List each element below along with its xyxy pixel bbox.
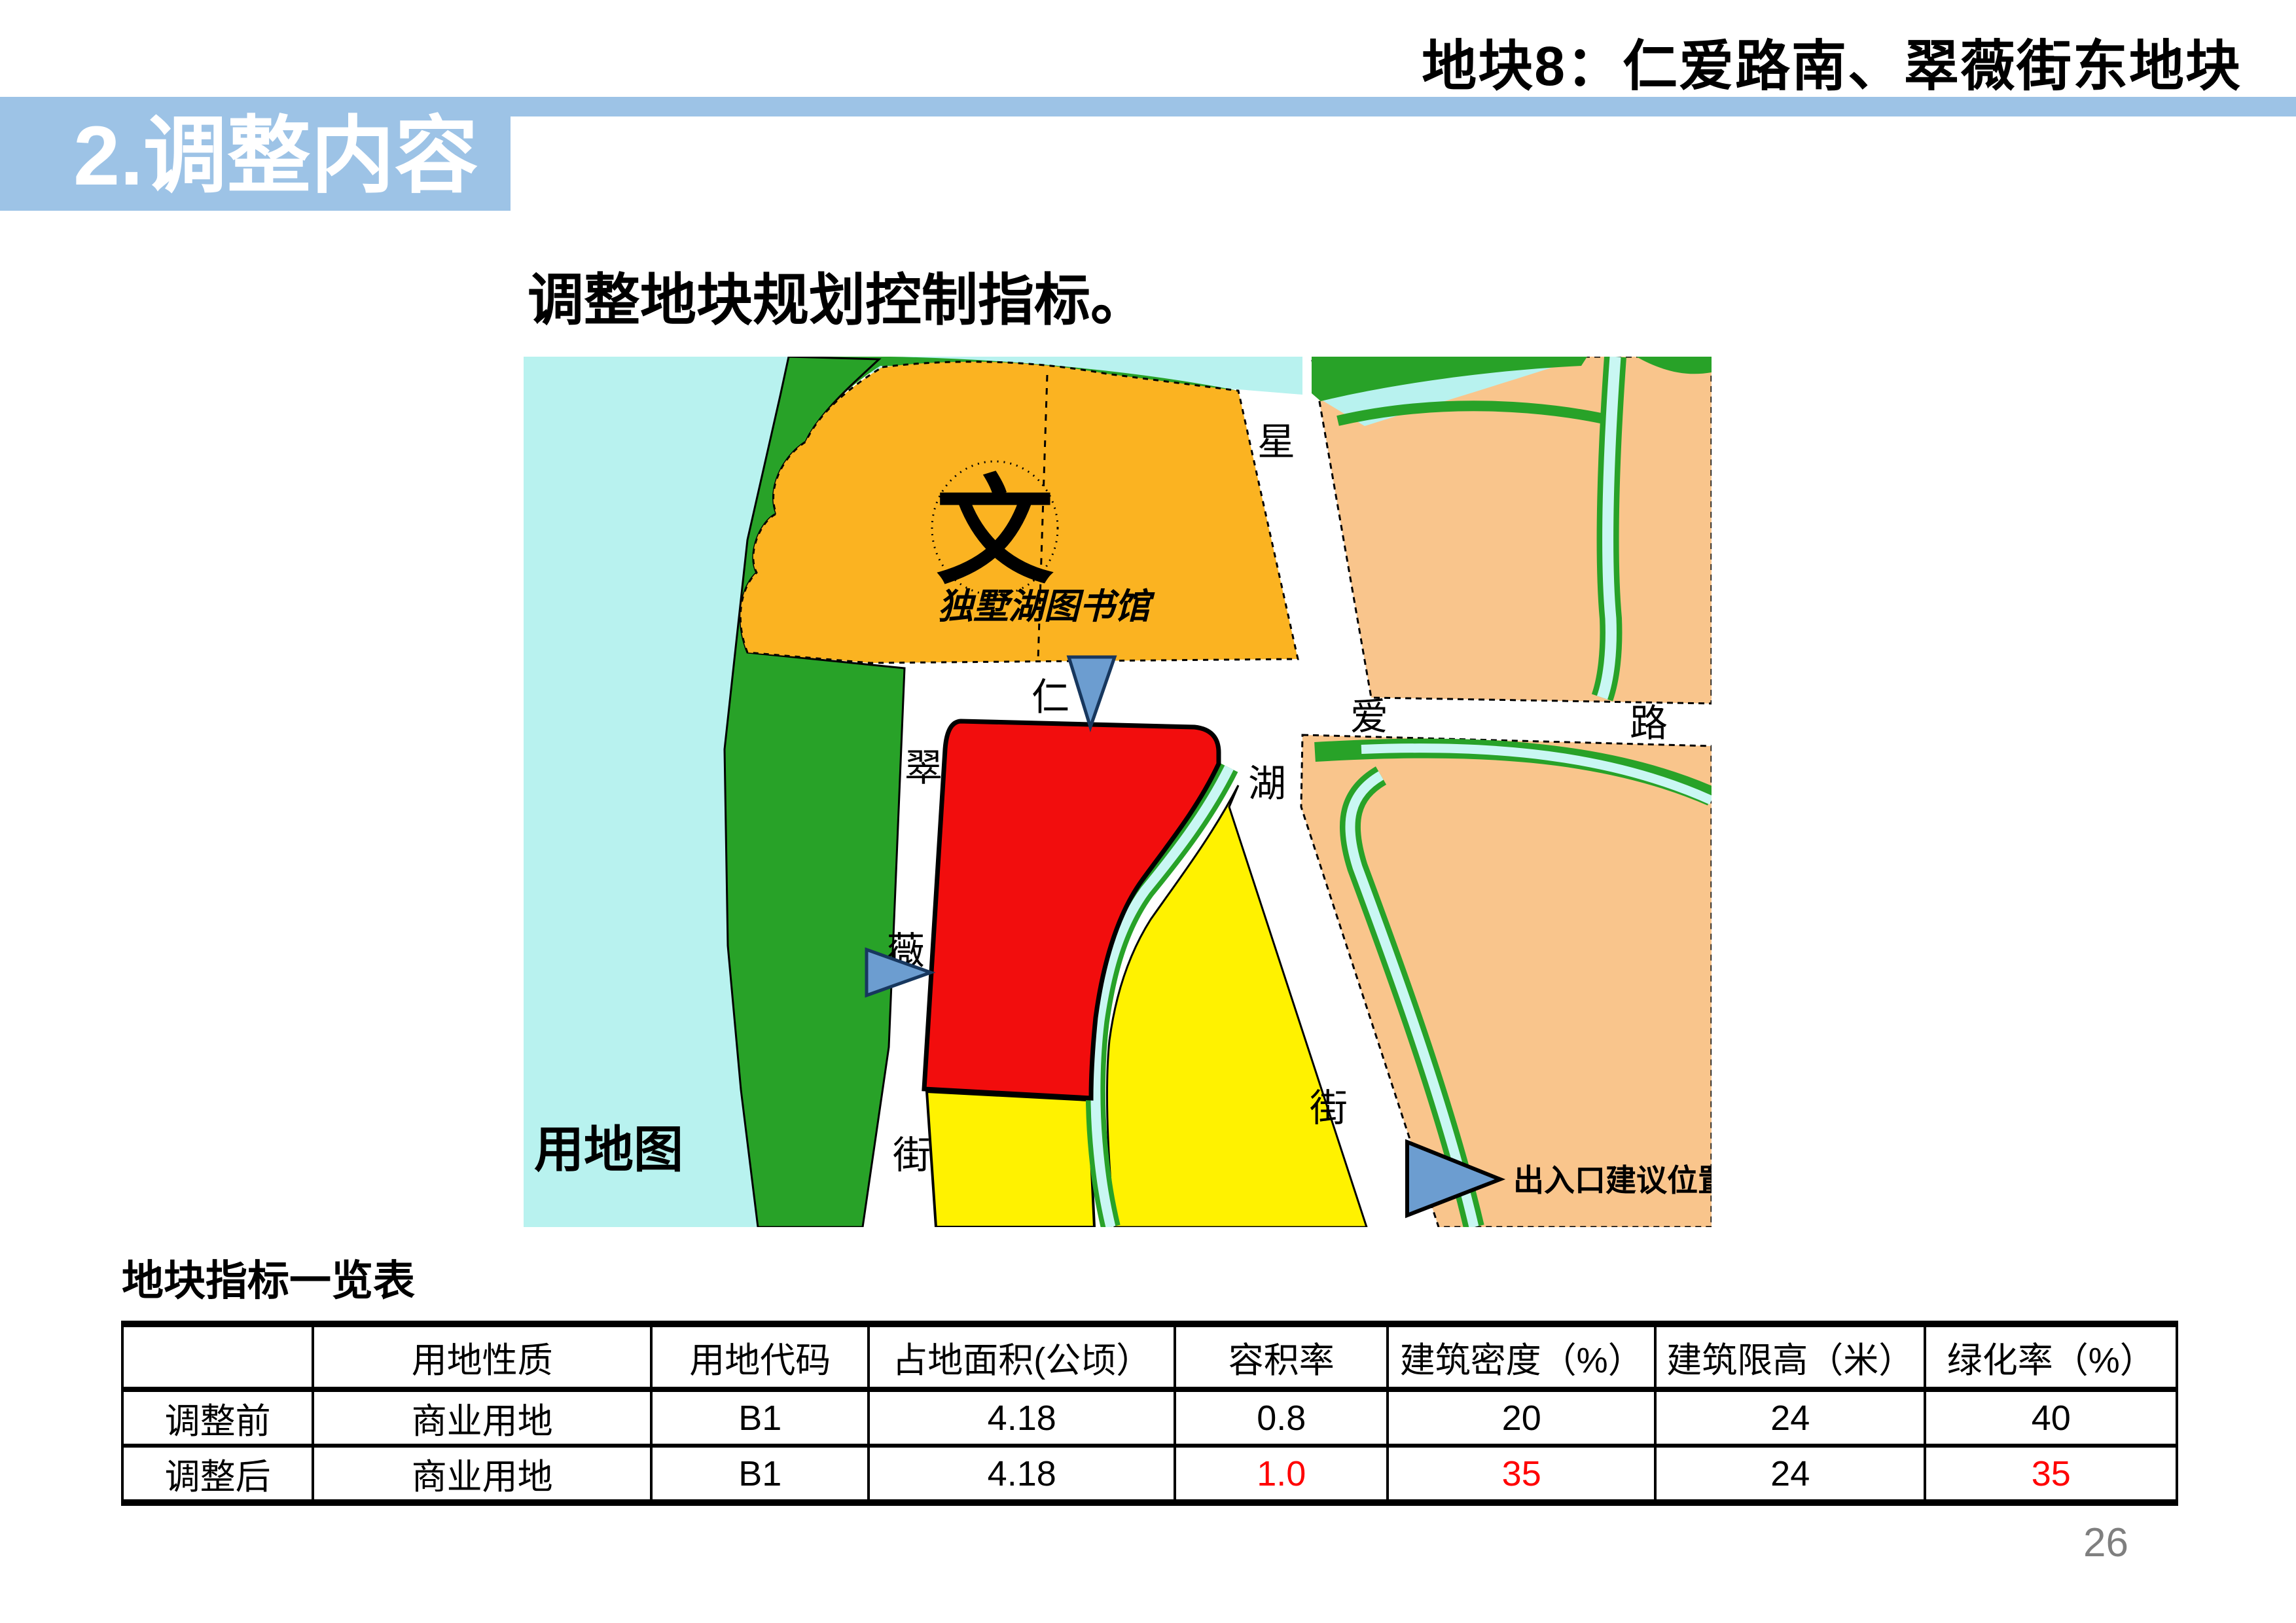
- col-header-greening: 绿化率（%）: [1925, 1324, 2177, 1389]
- table-title: 地块指标一览表: [122, 1247, 415, 1308]
- map-caption: 用地图: [534, 1122, 683, 1178]
- section-banner: 2.调整内容: [0, 97, 511, 211]
- col-header-area: 占地面积(公顷）: [869, 1324, 1175, 1389]
- cell-value: B1: [651, 1389, 869, 1446]
- road-label-cui: 翠: [905, 747, 942, 789]
- cell-value-changed: 35: [1388, 1446, 1655, 1503]
- table-row-before: 调整前 商业用地 B1 4.18 0.8 20 24 40: [122, 1389, 2177, 1446]
- col-header-density: 建筑密度（%）: [1388, 1324, 1655, 1389]
- culture-symbol: 文: [936, 467, 1054, 598]
- cell-value: 24: [1655, 1389, 1926, 1446]
- land-use-map: 文 独墅湖图书馆 仁 爱 路 翠 薇 街 星 湖 街 出入口建议位置 用地图: [524, 357, 1712, 1227]
- cell-value: B1: [651, 1446, 869, 1503]
- cell-value: 4.18: [869, 1389, 1175, 1446]
- road-label-ai: 爱: [1350, 696, 1388, 738]
- col-header-height-limit: 建筑限高（米）: [1655, 1324, 1926, 1389]
- cell-value: 商业用地: [313, 1446, 651, 1503]
- col-header-blank: [122, 1324, 313, 1389]
- cell-value-changed: 35: [1925, 1446, 2177, 1503]
- cell-value: 40: [1925, 1389, 2177, 1446]
- col-header-far: 容积率: [1175, 1324, 1388, 1389]
- road-label-ren: 仁: [1031, 676, 1069, 719]
- slide-header-title: 地块8：仁爱路南、翠薇街东地块: [1422, 22, 2242, 101]
- cell-value: 24: [1655, 1446, 1926, 1503]
- cell-value-changed: 1.0: [1175, 1446, 1388, 1503]
- row-label: 调整后: [122, 1446, 313, 1503]
- entrance-marker-legend-label: 出入口建议位置: [1513, 1163, 1712, 1198]
- commercial-area-south: [927, 1092, 1094, 1227]
- library-label: 独墅湖图书馆: [938, 587, 1155, 626]
- road-label-jie-east: 街: [1310, 1087, 1348, 1130]
- col-header-land-use: 用地性质: [313, 1324, 651, 1389]
- page-number: 26: [2083, 1520, 2128, 1566]
- cell-value: 商业用地: [313, 1389, 651, 1446]
- road-label-lu: 路: [1630, 702, 1668, 745]
- road-label-xing: 星: [1257, 421, 1295, 463]
- section-banner-label: 2.调整内容: [73, 97, 478, 211]
- intro-text: 调整地块规划控制指标。: [528, 254, 1147, 336]
- slide: 地块8：仁爱路南、翠薇街东地块 2.调整内容 调整地块规划控制指标。: [0, 0, 2296, 1623]
- table-row-after: 调整后 商业用地 B1 4.18 1.0 35 24 35: [122, 1446, 2177, 1503]
- col-header-land-code: 用地代码: [651, 1324, 869, 1389]
- table-header-row: 用地性质 用地代码 占地面积(公顷） 容积率 建筑密度（%） 建筑限高（米） 绿…: [122, 1324, 2177, 1389]
- parcel-indicator-table: 用地性质 用地代码 占地面积(公顷） 容积率 建筑密度（%） 建筑限高（米） 绿…: [121, 1321, 2178, 1506]
- road-label-hu: 湖: [1248, 762, 1286, 805]
- row-label: 调整前: [122, 1389, 313, 1446]
- road-label-jie-west: 街: [893, 1134, 931, 1177]
- cell-value: 4.18: [869, 1446, 1175, 1503]
- cell-value: 20: [1388, 1389, 1655, 1446]
- cell-value: 0.8: [1175, 1389, 1388, 1446]
